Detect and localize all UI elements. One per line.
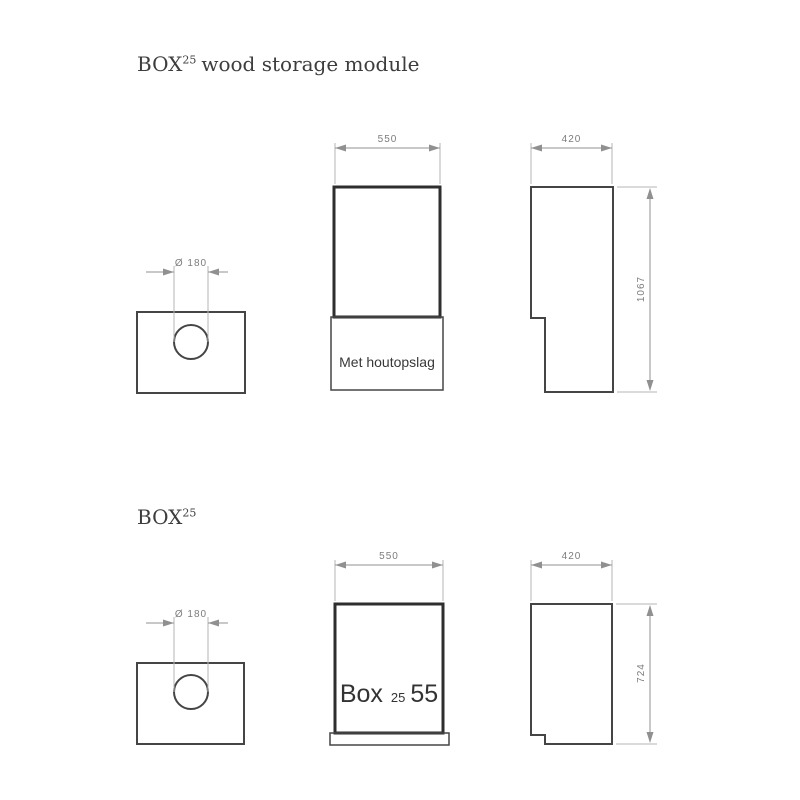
side-view-profile-upper <box>531 187 613 392</box>
extension-line-width-front-upper <box>335 143 440 184</box>
dim-label-width-front-upper: 550 <box>335 134 440 146</box>
arrowhead <box>647 188 654 199</box>
compartment-label-upper: Met houtopslag <box>331 354 443 370</box>
extension-line-width-front-lower <box>335 560 443 601</box>
model-label-main: Box <box>340 680 383 708</box>
dim-label-height-upper: 1067 <box>636 267 648 311</box>
arrowhead <box>647 605 654 616</box>
arrowhead <box>647 380 654 391</box>
flue-hole-circle-lower <box>174 675 208 709</box>
flue-hole-circle-upper <box>174 325 208 359</box>
dim-label-width-side-lower: 420 <box>531 551 612 563</box>
title-superscript: 25 <box>182 506 196 519</box>
title-main: BOX <box>137 505 182 529</box>
arrowhead <box>647 732 654 743</box>
model-label-superscript: 25 <box>391 684 405 712</box>
dim-label-width-front-lower: 550 <box>335 551 443 563</box>
title-superscript: 25 <box>182 53 196 66</box>
technical-drawing-page: BOX25wood storage module BOX25 Ø 180 550… <box>0 0 800 800</box>
drawing-title-upper: BOX25wood storage module <box>137 52 419 76</box>
title-main: BOX <box>137 52 182 76</box>
side-view-profile-lower <box>531 604 612 744</box>
title-rest: wood storage module <box>201 52 419 76</box>
extension-line-width-side-upper <box>531 143 612 184</box>
dim-label-diameter-lower: Ø 180 <box>154 609 228 621</box>
dim-label-height-lower: 724 <box>636 651 648 695</box>
front-view-body-lower <box>335 604 443 733</box>
drawing-title-lower: BOX25 <box>137 505 201 529</box>
dim-label-width-side-upper: 420 <box>531 134 612 146</box>
extension-line-width-side-lower <box>531 560 612 601</box>
front-view-model-label: Box2555 <box>335 680 443 712</box>
front-view-body-upper <box>334 187 440 317</box>
dim-label-diameter-upper: Ø 180 <box>154 258 228 270</box>
plinth-strip-lower <box>330 733 449 745</box>
model-label-rest: 55 <box>410 680 438 708</box>
